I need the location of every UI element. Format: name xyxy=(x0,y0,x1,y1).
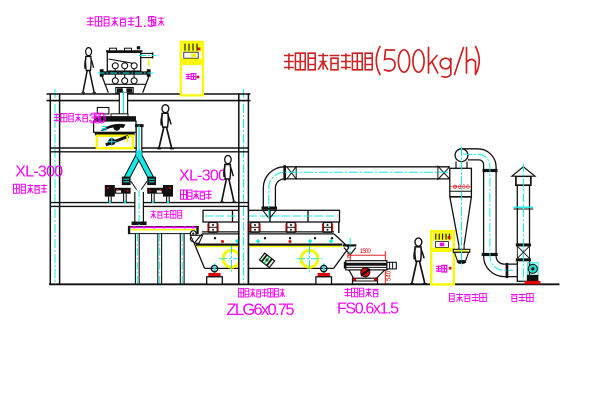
svg-text:350: 350 xyxy=(89,111,106,127)
svg-text:1.5: 1.5 xyxy=(134,14,156,31)
svg-text:ZLG6x0.75: ZLG6x0.75 xyxy=(227,301,295,319)
svg-text:FS0.6x1.5: FS0.6x1.5 xyxy=(337,301,399,318)
svg-text:XL-300: XL-300 xyxy=(179,168,227,185)
svg-text:1500: 1500 xyxy=(360,248,372,255)
svg-text:XL-300: XL-300 xyxy=(15,164,63,181)
svg-text:540: 540 xyxy=(387,270,393,281)
